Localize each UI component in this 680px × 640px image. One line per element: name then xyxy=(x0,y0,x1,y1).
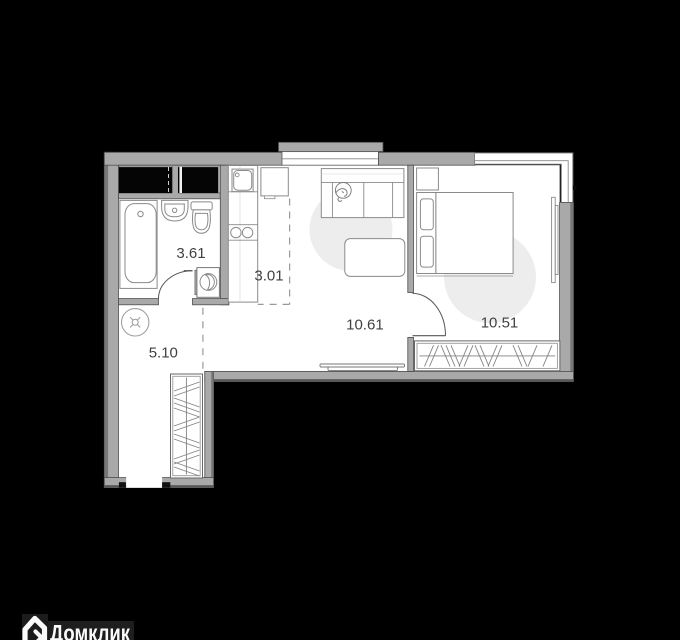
svg-text:3.61: 3.61 xyxy=(176,245,205,262)
svg-text:5.10: 5.10 xyxy=(149,345,178,362)
svg-text:10.61: 10.61 xyxy=(346,317,384,334)
svg-text:3.01: 3.01 xyxy=(254,268,283,285)
svg-text:Домклик: Домклик xyxy=(50,620,130,640)
svg-text:10.51: 10.51 xyxy=(481,314,519,331)
